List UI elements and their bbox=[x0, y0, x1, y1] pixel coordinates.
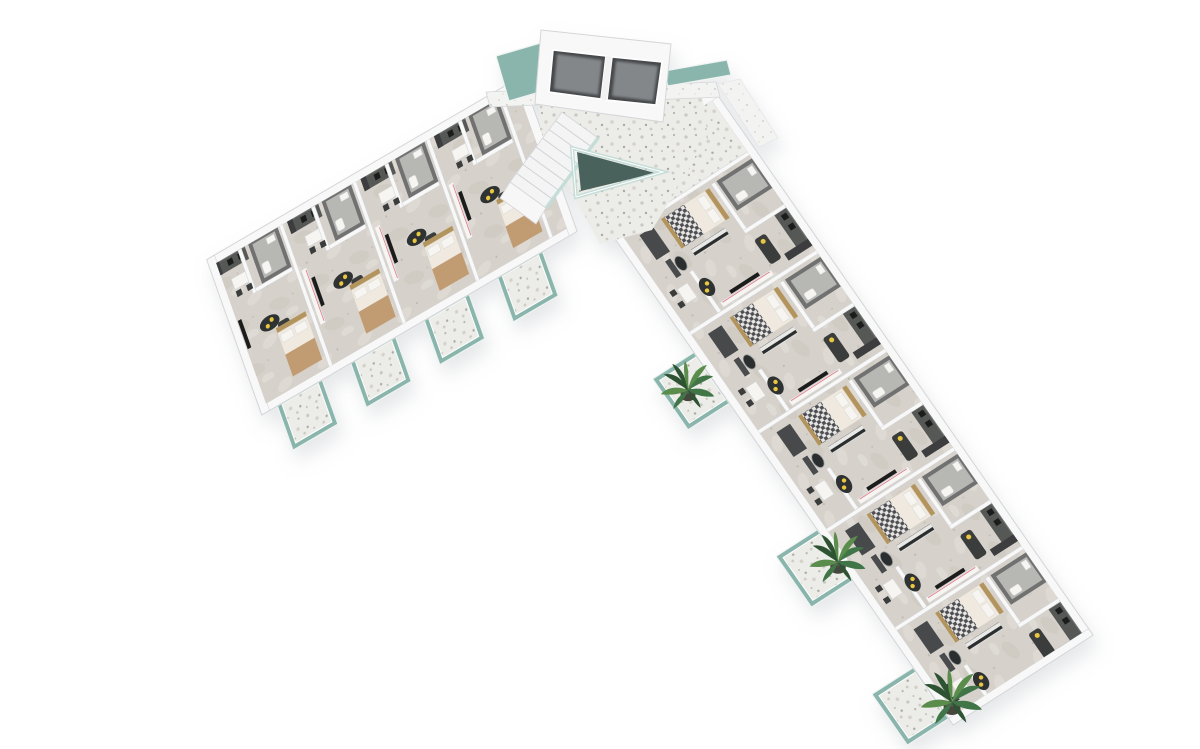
building bbox=[207, 30, 1097, 749]
floorplan-canvas bbox=[0, 0, 1200, 749]
elevator-shaft bbox=[607, 57, 662, 105]
floorplan-render bbox=[0, 0, 1200, 749]
elevator-shaft bbox=[549, 50, 606, 99]
roof-parapet-glass bbox=[664, 60, 731, 86]
west-wing bbox=[207, 76, 593, 459]
